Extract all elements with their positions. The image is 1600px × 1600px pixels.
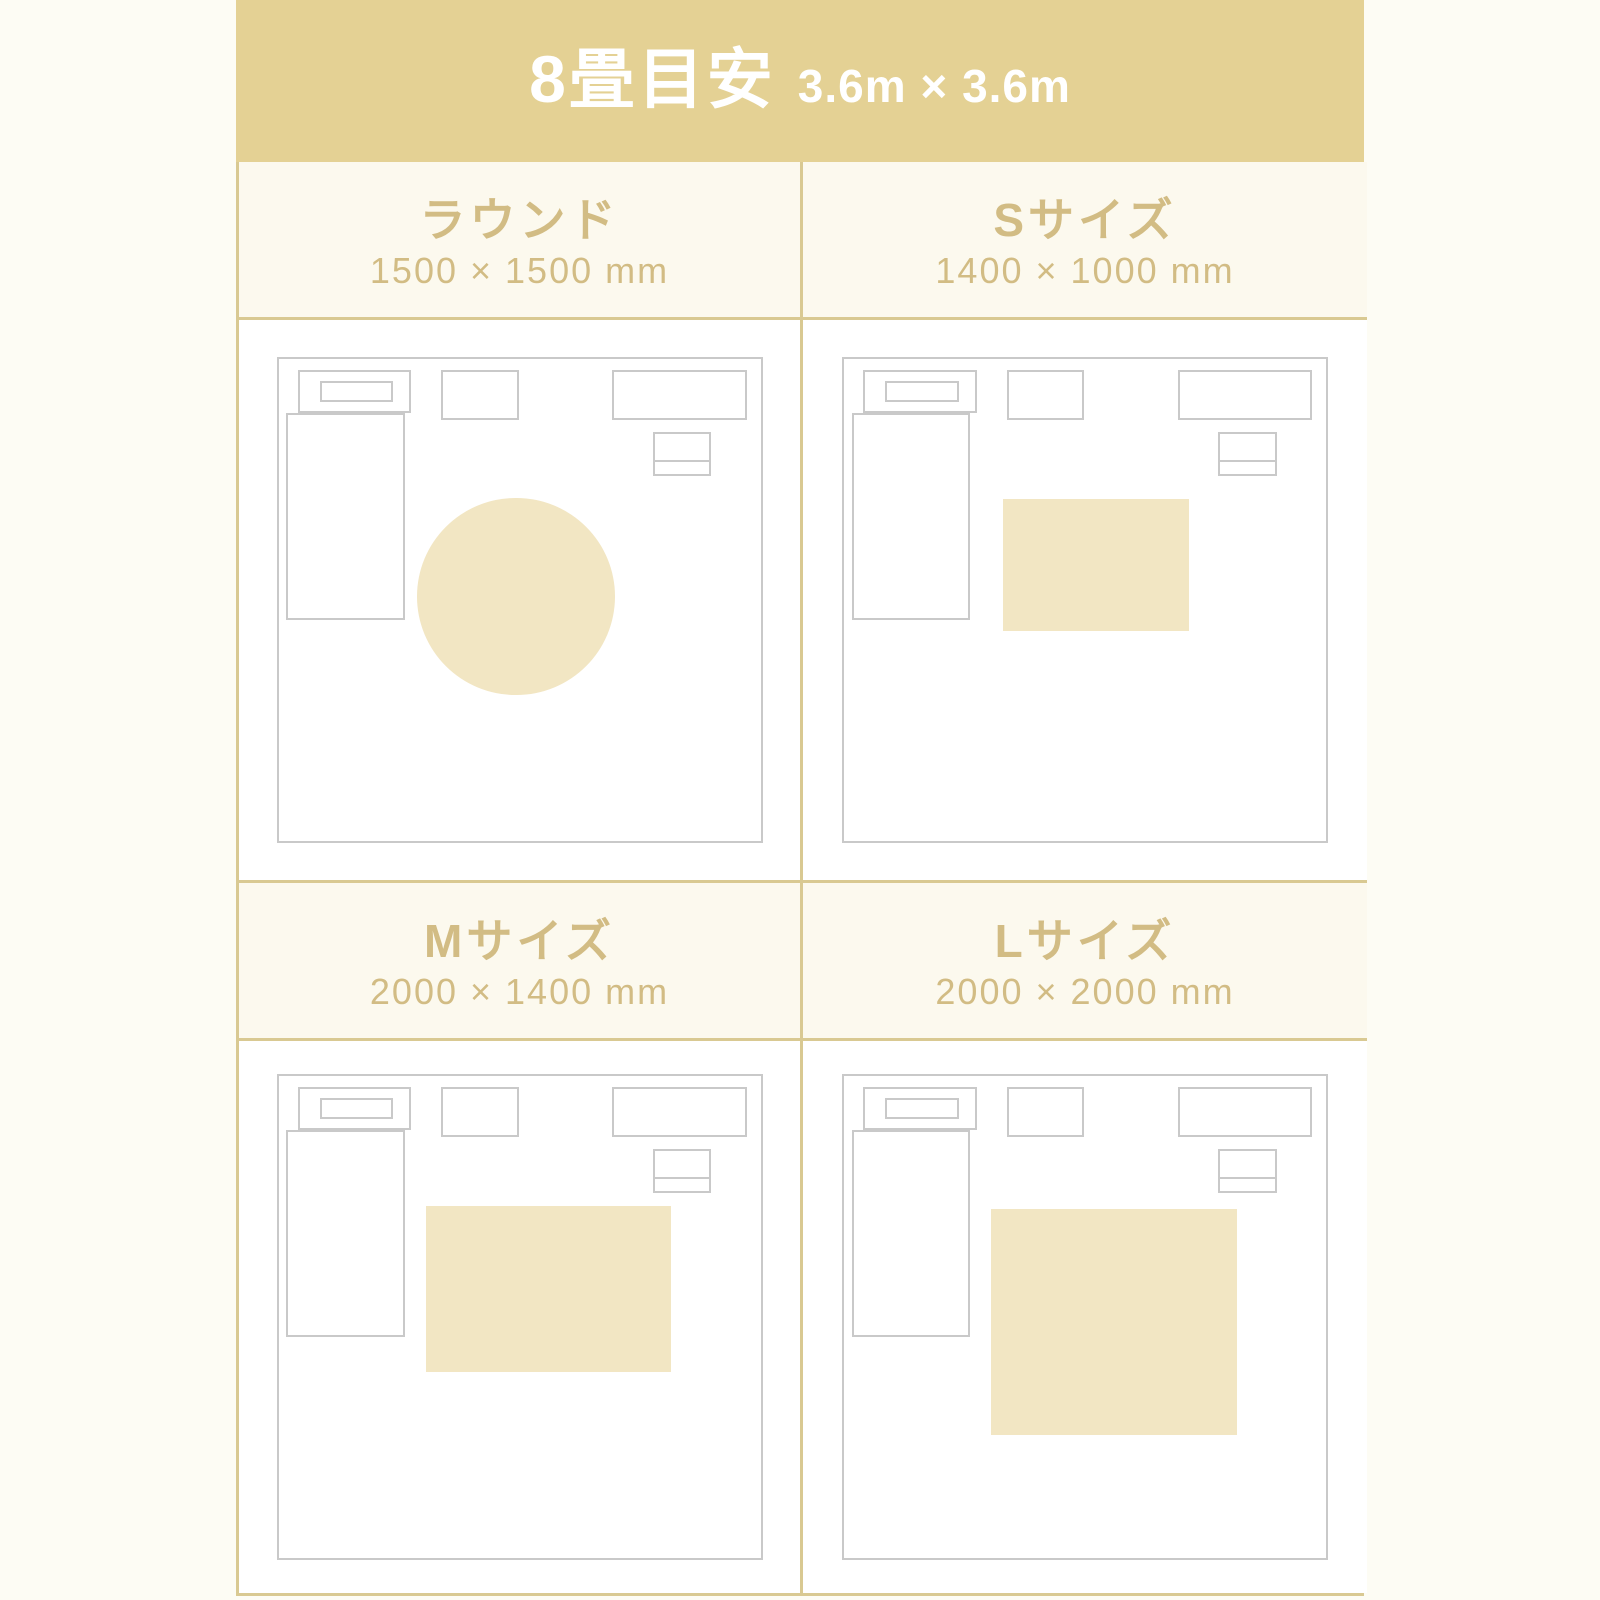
desk [612,1087,747,1138]
desk-chair [1218,432,1277,475]
room-outline [277,357,763,843]
bed-pillow [885,381,958,402]
panel-l-size-title: Lサイズ [995,918,1176,964]
bed-pillow [320,381,393,402]
bed [286,413,405,620]
panel-m-size: Mサイズ 2000 × 1400 mm [239,880,803,1593]
panel-round-diagram [239,320,800,880]
room-size-title: 8畳目安 [529,46,776,112]
room-outline [277,1074,763,1560]
panel-s-size-header: Sサイズ 1400 × 1000 mm [803,162,1367,320]
panel-l-size-header: Lサイズ 2000 × 2000 mm [803,883,1367,1041]
desk-chair [653,1149,712,1192]
panel-l-size-size: 2000 × 2000 mm [935,974,1234,1010]
panel-m-size-header: Mサイズ 2000 × 1400 mm [239,883,800,1041]
panel-round: ラウンド 1500 × 1500 mm [239,162,803,880]
panel-round-size: 1500 × 1500 mm [370,253,669,289]
nightstand [1007,1087,1084,1138]
desk [612,370,747,421]
nightstand [1007,370,1084,421]
bed [852,413,971,620]
rug-round [417,498,615,696]
bed-pillow [320,1098,393,1119]
panel-m-size-title: Mサイズ [424,918,615,964]
room-outline [842,357,1328,843]
panel-m-size-size: 2000 × 1400 mm [370,974,669,1010]
desk-chair [1218,1149,1277,1192]
panel-s-size: Sサイズ 1400 × 1000 mm [803,162,1367,880]
desk [1178,370,1313,421]
panel-round-title: ラウンド [420,197,620,243]
size-panels-grid: ラウンド 1500 × 1500 mm Sサイズ 1400 × 1000 [236,162,1364,1596]
desk [1178,1087,1313,1138]
bed [852,1130,971,1337]
desk-chair [653,432,712,475]
bed-pillow [885,1098,958,1119]
panel-s-size-size: 1400 × 1000 mm [935,253,1234,289]
panel-s-size-title: Sサイズ [993,197,1176,243]
bed [286,1130,405,1337]
nightstand [441,370,518,421]
panel-m-size-diagram [239,1041,800,1593]
panel-l-size-diagram [803,1041,1367,1593]
room-outline [842,1074,1328,1560]
panel-s-size-diagram [803,320,1367,880]
rug-l-size [991,1209,1237,1436]
nightstand [441,1087,518,1138]
panel-l-size: Lサイズ 2000 × 2000 mm [803,880,1367,1593]
room-size-header-band: 8畳目安 3.6m × 3.6m [236,0,1364,162]
rug-m-size [426,1206,672,1372]
size-guide-infographic: 8畳目安 3.6m × 3.6m ラウンド 1500 × 1500 mm [236,0,1364,1596]
panel-round-header: ラウンド 1500 × 1500 mm [239,162,800,320]
rug-s-size [1003,499,1189,632]
room-size-dimensions: 3.6m × 3.6m [798,63,1071,109]
